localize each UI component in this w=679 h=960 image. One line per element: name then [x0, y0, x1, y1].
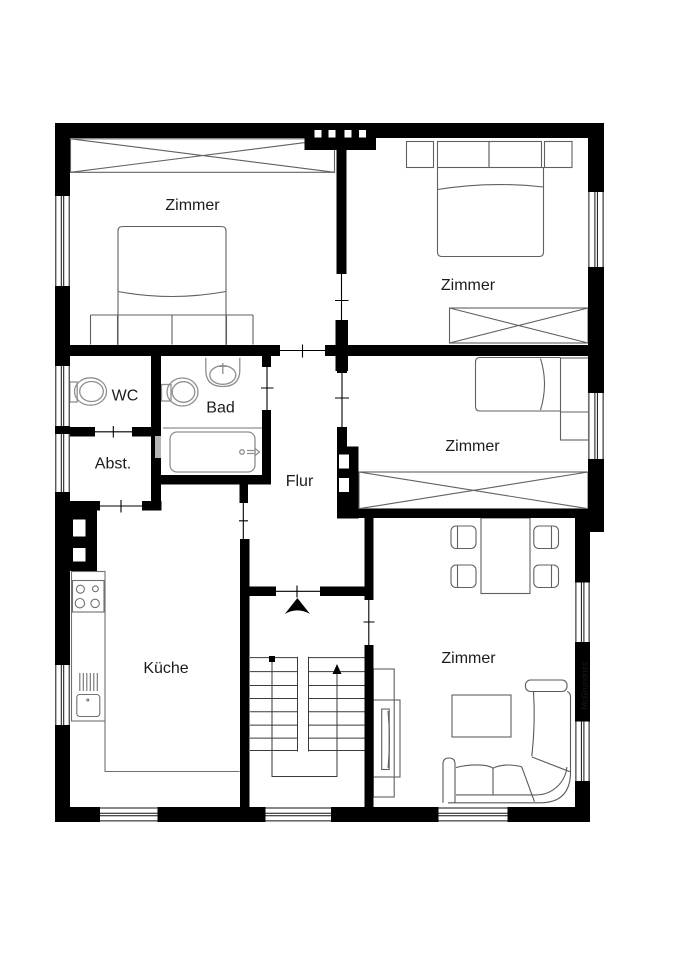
- svg-text:Zimmer: Zimmer: [165, 197, 220, 214]
- svg-text:Zimmer: Zimmer: [441, 277, 496, 294]
- svg-text:Bad: Bad: [206, 400, 234, 417]
- svg-text:Flur: Flur: [286, 473, 314, 490]
- svg-text:Zimmer: Zimmer: [441, 650, 496, 667]
- svg-text:McGrundriss: McGrundriss: [581, 662, 590, 710]
- svg-text:Abst.: Abst.: [95, 456, 131, 473]
- svg-text:Küche: Küche: [143, 660, 188, 677]
- svg-text:WC: WC: [112, 387, 139, 404]
- svg-text:Zimmer: Zimmer: [445, 438, 500, 455]
